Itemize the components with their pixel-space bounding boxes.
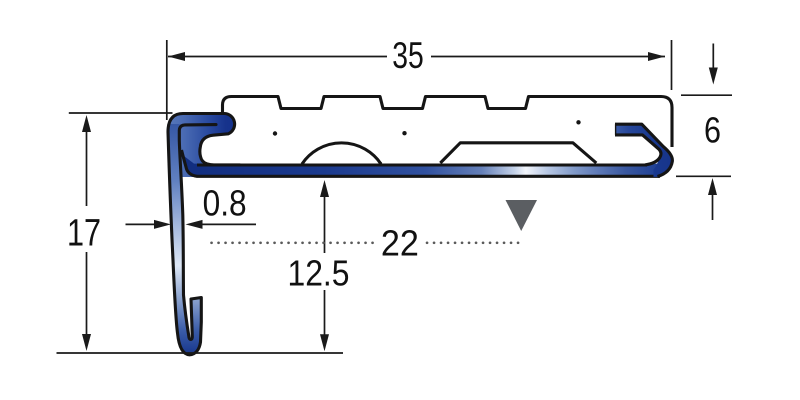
svg-text:35: 35: [392, 35, 424, 76]
svg-text:12.5: 12.5: [288, 253, 350, 294]
svg-text:0.8: 0.8: [203, 183, 247, 224]
svg-text:17: 17: [67, 213, 101, 255]
svg-text:6: 6: [704, 110, 721, 151]
svg-text:22: 22: [381, 223, 419, 264]
